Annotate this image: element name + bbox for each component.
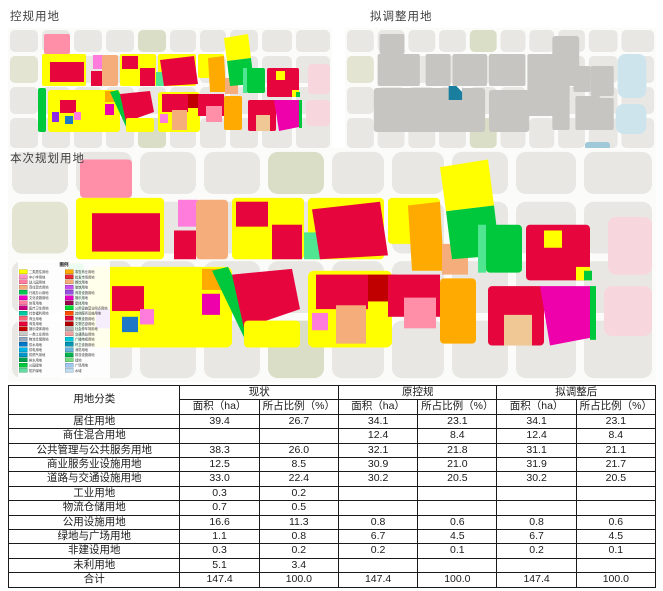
value-cell: 5.1 bbox=[180, 558, 259, 572]
value-cell: 16.6 bbox=[180, 515, 259, 529]
value-cell: 21.7 bbox=[576, 458, 655, 472]
legend-swatch-icon bbox=[65, 342, 74, 347]
legend-swatch-icon bbox=[65, 332, 74, 337]
category-cell: 商业服务业设施用地 bbox=[9, 458, 180, 472]
value-cell bbox=[259, 429, 338, 443]
legend-swatch-icon bbox=[19, 290, 28, 295]
group-header-current: 现状 bbox=[180, 386, 339, 400]
table-row: 公用设施用地16.611.30.80.60.80.6 bbox=[9, 515, 656, 529]
value-cell: 20.5 bbox=[418, 472, 497, 486]
value-cell: 26.7 bbox=[259, 414, 338, 428]
legend-swatch-icon bbox=[65, 352, 74, 357]
category-cell: 道路与交通设施用地 bbox=[9, 472, 180, 486]
table-row: 合计147.4100.0147.4100.0147.4100.0 bbox=[9, 573, 656, 587]
category-cell: 公用设施用地 bbox=[9, 515, 180, 529]
planning-document-page: 控规用地 拟调整用地 本次规划用地 bbox=[0, 0, 663, 591]
value-cell: 0.7 bbox=[180, 501, 259, 515]
group-header-adjusted: 拟调整后 bbox=[497, 386, 656, 400]
legend-swatch-icon bbox=[19, 368, 28, 373]
value-cell: 31.1 bbox=[497, 443, 576, 457]
group-header-original: 原控规 bbox=[338, 386, 497, 400]
legend-swatch-icon bbox=[19, 342, 28, 347]
value-cell: 11.3 bbox=[259, 515, 338, 529]
value-cell: 0.8 bbox=[338, 515, 417, 529]
value-cell: 34.1 bbox=[338, 414, 417, 428]
value-cell: 30.2 bbox=[338, 472, 417, 486]
legend-item: 水域 bbox=[64, 368, 110, 373]
table-row: 公共管理与公共服务用地38.326.032.121.831.121.1 bbox=[9, 443, 656, 457]
value-cell bbox=[418, 486, 497, 500]
legend-swatch-icon bbox=[19, 306, 28, 311]
category-cell: 非建设用地 bbox=[9, 544, 180, 558]
value-cell: 33.0 bbox=[180, 472, 259, 486]
category-cell: 合计 bbox=[9, 573, 180, 587]
value-cell: 21.8 bbox=[418, 443, 497, 457]
value-cell bbox=[180, 429, 259, 443]
table-row: 道路与交通设施用地33.022.430.220.530.220.5 bbox=[9, 472, 656, 486]
landuse-table-body: 居住用地39.426.734.123.134.123.1商住混合用地12.48.… bbox=[9, 414, 656, 587]
legend-swatch-icon bbox=[65, 301, 74, 306]
subheader-ratio: 所占比例（%） bbox=[259, 400, 338, 414]
legend-swatch-icon bbox=[65, 269, 74, 274]
legend-swatch-icon bbox=[65, 368, 74, 373]
value-cell: 34.1 bbox=[497, 414, 576, 428]
value-cell bbox=[497, 558, 576, 572]
adjusted-parcel-highlight bbox=[449, 86, 462, 100]
category-cell: 商住混合用地 bbox=[9, 429, 180, 443]
value-cell: 147.4 bbox=[497, 573, 576, 587]
value-cell: 0.1 bbox=[576, 544, 655, 558]
legend-swatch-icon bbox=[19, 321, 28, 326]
legend-swatch-icon bbox=[19, 269, 28, 274]
subheader-ratio: 所占比例（%） bbox=[418, 400, 497, 414]
value-cell bbox=[497, 486, 576, 500]
value-cell bbox=[576, 486, 655, 500]
value-cell: 0.3 bbox=[180, 544, 259, 558]
legend-swatch-icon bbox=[65, 321, 74, 326]
value-cell bbox=[418, 501, 497, 515]
value-cell: 8.4 bbox=[418, 429, 497, 443]
proposed-adjust-map bbox=[345, 28, 656, 150]
value-cell: 32.1 bbox=[338, 443, 417, 457]
value-cell bbox=[576, 501, 655, 515]
value-cell: 4.5 bbox=[418, 530, 497, 544]
category-cell: 公共管理与公共服务用地 bbox=[9, 443, 180, 457]
legend-swatch-icon bbox=[19, 301, 28, 306]
landuse-table: 用地分类 现状 原控规 拟调整后 面积（ha） 所占比例（%） 面积（ha） 所… bbox=[8, 385, 656, 588]
value-cell: 12.4 bbox=[497, 429, 576, 443]
value-cell: 100.0 bbox=[259, 573, 338, 587]
control-plan-map bbox=[8, 28, 332, 150]
value-cell: 38.3 bbox=[180, 443, 259, 457]
subheader-ratio: 所占比例（%） bbox=[576, 400, 655, 414]
legend-swatch-icon bbox=[65, 337, 74, 342]
subheader-area: 面积（ha） bbox=[180, 400, 259, 414]
value-cell: 0.2 bbox=[338, 544, 417, 558]
value-cell: 23.1 bbox=[576, 414, 655, 428]
legend-col-2: 零售商业用地批发市场用地餐饮用地旅馆用地商务设施用地娱乐用地康体用地公用设施营业… bbox=[64, 269, 110, 373]
table-row: 绿地与广场用地1.10.86.74.56.74.5 bbox=[9, 530, 656, 544]
legend-label: 水域 bbox=[75, 368, 82, 373]
value-cell: 0.6 bbox=[576, 515, 655, 529]
table-row: 物流仓储用地0.70.5 bbox=[9, 501, 656, 515]
legend-swatch-icon bbox=[65, 363, 74, 368]
value-cell: 1.1 bbox=[180, 530, 259, 544]
category-cell: 工业用地 bbox=[9, 486, 180, 500]
legend-swatch-icon bbox=[19, 337, 28, 342]
value-cell: 12.5 bbox=[180, 458, 259, 472]
legend-swatch-icon bbox=[19, 363, 28, 368]
table-row: 非建设用地0.30.20.20.10.20.1 bbox=[9, 544, 656, 558]
legend-swatch-icon bbox=[19, 347, 28, 352]
value-cell bbox=[338, 558, 417, 572]
value-cell: 26.0 bbox=[259, 443, 338, 457]
control-plan-title: 控规用地 bbox=[10, 8, 60, 24]
value-cell: 0.3 bbox=[180, 486, 259, 500]
legend-swatch-icon bbox=[65, 280, 74, 285]
value-cell: 23.1 bbox=[418, 414, 497, 428]
value-cell: 6.7 bbox=[497, 530, 576, 544]
legend-swatch-icon bbox=[19, 285, 28, 290]
table-row: 居住用地39.426.734.123.134.123.1 bbox=[9, 414, 656, 428]
proposed-adjust-title: 拟调整用地 bbox=[370, 8, 433, 24]
value-cell: 0.8 bbox=[259, 530, 338, 544]
value-cell: 30.2 bbox=[497, 472, 576, 486]
legend-swatch-icon bbox=[65, 285, 74, 290]
value-cell: 12.4 bbox=[338, 429, 417, 443]
legend-swatch-icon bbox=[19, 275, 28, 280]
table-row: 工业用地0.30.2 bbox=[9, 486, 656, 500]
legend-swatch-icon bbox=[19, 280, 28, 285]
value-cell: 0.2 bbox=[497, 544, 576, 558]
legend-swatch-icon bbox=[65, 290, 74, 295]
legend-swatch-icon bbox=[65, 306, 74, 311]
value-cell: 22.4 bbox=[259, 472, 338, 486]
legend-col-1: 二类居住用地中小学用地幼儿园用地商住混合用地行政办公用地文化设施用地体育用地医疗… bbox=[18, 269, 64, 373]
legend-swatch-icon bbox=[65, 316, 74, 321]
value-cell: 0.2 bbox=[259, 544, 338, 558]
legend-swatch-icon bbox=[19, 311, 28, 316]
value-cell bbox=[338, 486, 417, 500]
legend-swatch-icon bbox=[19, 352, 28, 357]
legend-swatch-icon bbox=[19, 326, 28, 331]
value-cell: 0.6 bbox=[418, 515, 497, 529]
value-cell: 31.9 bbox=[497, 458, 576, 472]
value-cell: 147.4 bbox=[338, 573, 417, 587]
legend-swatch-icon bbox=[19, 316, 28, 321]
legend-swatch-icon bbox=[65, 311, 74, 316]
legend-label: 防护绿地 bbox=[29, 368, 42, 373]
value-cell: 39.4 bbox=[180, 414, 259, 428]
value-cell bbox=[497, 501, 576, 515]
value-cell: 21.1 bbox=[576, 443, 655, 457]
value-cell bbox=[418, 558, 497, 572]
table-row: 未利用地5.13.4 bbox=[9, 558, 656, 572]
value-cell: 4.5 bbox=[576, 530, 655, 544]
value-cell: 0.5 bbox=[259, 501, 338, 515]
legend-swatch-icon bbox=[19, 358, 28, 363]
subheader-area: 面积（ha） bbox=[338, 400, 417, 414]
legend-swatch-icon bbox=[65, 275, 74, 280]
value-cell bbox=[576, 558, 655, 572]
value-cell: 0.1 bbox=[418, 544, 497, 558]
legend-swatch-icon bbox=[65, 347, 74, 352]
corner-header: 用地分类 bbox=[9, 386, 180, 415]
legend-swatch-icon bbox=[65, 358, 74, 363]
value-cell: 20.5 bbox=[576, 472, 655, 486]
category-cell: 绿地与广场用地 bbox=[9, 530, 180, 544]
table-group-header-row: 用地分类 现状 原控规 拟调整后 bbox=[9, 386, 656, 400]
value-cell: 0.8 bbox=[497, 515, 576, 529]
legend-item: 防护绿地 bbox=[18, 368, 64, 373]
legend-title: 图例 bbox=[18, 260, 110, 269]
legend-swatch-icon bbox=[65, 295, 74, 300]
category-cell: 物流仓储用地 bbox=[9, 501, 180, 515]
value-cell: 6.7 bbox=[338, 530, 417, 544]
category-cell: 未利用地 bbox=[9, 558, 180, 572]
value-cell: 8.5 bbox=[259, 458, 338, 472]
legend-swatch-icon bbox=[19, 295, 28, 300]
value-cell: 0.2 bbox=[259, 486, 338, 500]
table-row: 商住混合用地12.48.412.48.4 bbox=[9, 429, 656, 443]
legend-swatch-icon bbox=[19, 332, 28, 337]
value-cell: 21.0 bbox=[418, 458, 497, 472]
value-cell: 147.4 bbox=[180, 573, 259, 587]
table-row: 商业服务业设施用地12.58.530.921.031.921.7 bbox=[9, 458, 656, 472]
value-cell: 100.0 bbox=[576, 573, 655, 587]
current-plan-title: 本次规划用地 bbox=[10, 150, 85, 166]
value-cell: 100.0 bbox=[418, 573, 497, 587]
subheader-area: 面积（ha） bbox=[497, 400, 576, 414]
value-cell: 30.9 bbox=[338, 458, 417, 472]
map-legend: 图例 二类居住用地中小学用地幼儿园用地商住混合用地行政办公用地文化设施用地体育用… bbox=[18, 260, 110, 378]
value-cell: 3.4 bbox=[259, 558, 338, 572]
category-cell: 居住用地 bbox=[9, 414, 180, 428]
legend-swatch-icon bbox=[65, 326, 74, 331]
value-cell bbox=[338, 501, 417, 515]
value-cell: 8.4 bbox=[576, 429, 655, 443]
